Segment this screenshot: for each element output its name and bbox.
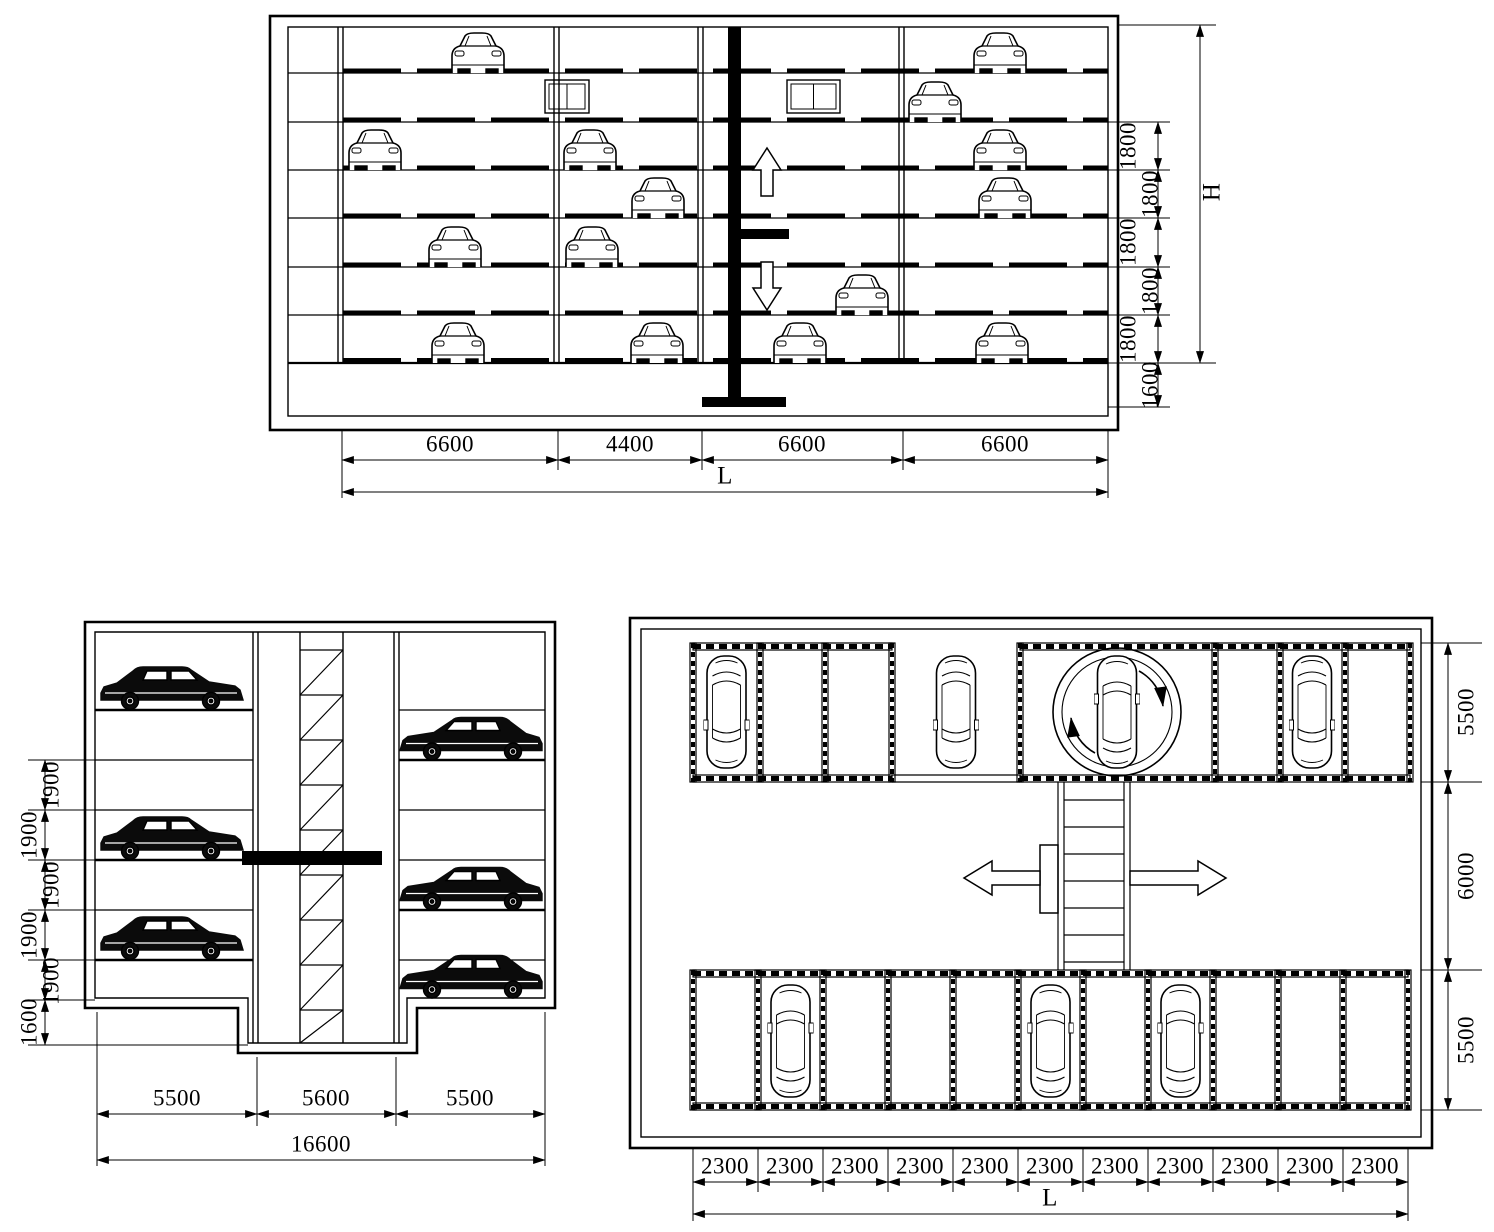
dim-label: 2300	[1351, 1155, 1399, 1178]
elevation-section-view	[270, 16, 1216, 498]
dim-label: 5600	[302, 1087, 350, 1110]
dim-label: 2300	[701, 1155, 749, 1178]
up-arrow-icon	[753, 148, 781, 196]
lift-mast	[728, 27, 741, 399]
dim-label: 1800	[1117, 122, 1140, 170]
dim-label: 6600	[426, 433, 474, 456]
drawing-lineart	[0, 0, 1494, 1232]
lift-platform	[242, 851, 382, 865]
lift-base	[702, 397, 786, 407]
dim-label: 1600	[18, 998, 41, 1046]
dim-label: 2300	[766, 1155, 814, 1178]
conveyor-track	[1040, 782, 1130, 970]
dim-label: 16600	[291, 1133, 351, 1156]
turntable	[1053, 648, 1181, 776]
dim-label: 1800	[1117, 315, 1140, 363]
dim-label: 2300	[1026, 1155, 1074, 1178]
dim-label: 1900	[40, 957, 63, 1005]
dim-label: 6600	[981, 433, 1029, 456]
dim-label: 2300	[831, 1155, 879, 1178]
dim-label: 1800	[1117, 218, 1140, 266]
dim-label: 1900	[40, 861, 63, 909]
window	[545, 80, 589, 113]
transfer-carriage	[1040, 845, 1058, 913]
lift-platform	[741, 229, 789, 239]
dim-label: 5500	[446, 1087, 494, 1110]
dim-label: 1900	[18, 811, 41, 859]
dim-label: 6600	[778, 433, 826, 456]
dim-label: 1900	[18, 911, 41, 959]
plan-bottom-row	[690, 970, 1411, 1110]
dim-label: 4400	[606, 433, 654, 456]
dim-label: 1800	[1139, 170, 1162, 218]
dim-label: 2300	[1286, 1155, 1334, 1178]
dim-label: 2300	[896, 1155, 944, 1178]
elevation-outer-wall	[270, 16, 1118, 430]
dim-label: 2300	[1221, 1155, 1269, 1178]
dim-label: 1600	[1139, 361, 1162, 409]
left-arrow-icon	[964, 861, 1040, 895]
dim-label: 1800	[1139, 267, 1162, 315]
length-label: L	[717, 464, 733, 489]
window	[787, 80, 840, 113]
right-arrow-icon	[1130, 861, 1226, 895]
down-arrow-icon	[753, 262, 781, 310]
plan-view	[630, 618, 1482, 1221]
dim-label: 5500	[1455, 688, 1478, 736]
dim-label: 2300	[1156, 1155, 1204, 1178]
dim-label: 1900	[40, 761, 63, 809]
dim-label: 2300	[961, 1155, 1009, 1178]
length-label: L	[1042, 1186, 1058, 1211]
hoist-shaft	[253, 632, 399, 1043]
mast-truss-hatch	[300, 650, 343, 1043]
parking-system-drawing: 6600 4400 6600 6600 L 1800 1800 1800 180…	[0, 0, 1494, 1232]
dim-label: 6000	[1455, 852, 1478, 900]
dim-label: 5500	[153, 1087, 201, 1110]
side-section-view	[28, 622, 555, 1166]
height-label: H	[1200, 183, 1225, 202]
dim-label: 5500	[1455, 1016, 1478, 1064]
dim-label: 2300	[1091, 1155, 1139, 1178]
